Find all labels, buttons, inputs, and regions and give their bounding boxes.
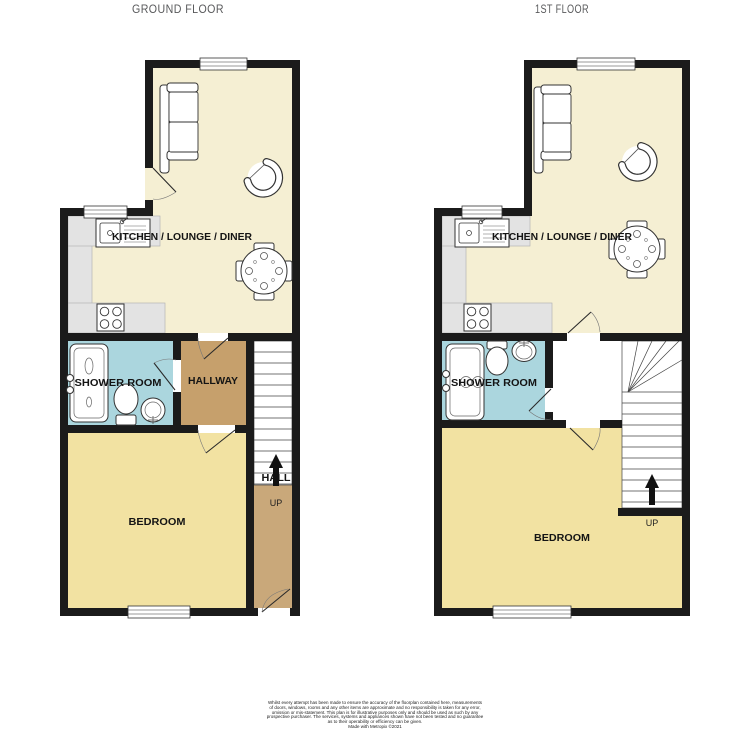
floorplan-canvas: GROUND FLOOR	[0, 0, 750, 740]
ground-sofa	[160, 83, 198, 173]
ground-armchair	[248, 162, 280, 194]
ground-toilet	[114, 384, 138, 425]
first-lounge-window	[577, 58, 635, 70]
ground-hallway-label: HALLWAY	[188, 376, 238, 387]
first-hob	[464, 304, 491, 331]
ground-kitchen-window	[84, 206, 127, 218]
first-basin	[512, 341, 536, 362]
first-toilet	[486, 341, 508, 375]
ground-kitchen-label: KITCHEN / LOUNGE / DINER	[112, 232, 253, 243]
first-shower-label: SHOWER ROOM	[451, 378, 537, 389]
first-landing	[553, 341, 622, 420]
ground-bedroom-label: BEDROOM	[129, 517, 186, 528]
first-sofa	[534, 85, 571, 173]
disclaimer-credit: Made with Metropix ©2021	[0, 725, 750, 730]
disclaimer-text: Whilst every attempt has been made to en…	[0, 701, 750, 730]
first-floor-title: 1ST FLOOR	[535, 2, 589, 16]
first-kitchen-window	[462, 206, 502, 218]
first-bedroom-window	[493, 606, 571, 618]
ground-shower-label: SHOWER ROOM	[75, 378, 162, 389]
ground-floor-title: GROUND FLOOR	[132, 2, 224, 16]
ground-bedroom-window	[128, 606, 190, 618]
ground-up-label: UP	[270, 498, 283, 508]
ground-lounge-window	[200, 58, 247, 70]
ground-hob	[97, 304, 124, 331]
ground-floor-plan: GROUND FLOOR	[60, 2, 300, 618]
floorplan-page: GROUND FLOOR	[0, 0, 750, 740]
first-kitchen-label: KITCHEN / LOUNGE / DINER	[492, 232, 633, 243]
first-armchair	[622, 146, 654, 178]
ground-side-door-opening	[145, 168, 153, 200]
first-up-label: UP	[646, 518, 659, 528]
first-floor-plan: 1ST FLOOR	[434, 2, 690, 618]
first-bedroom-label: BEDROOM	[534, 533, 590, 544]
